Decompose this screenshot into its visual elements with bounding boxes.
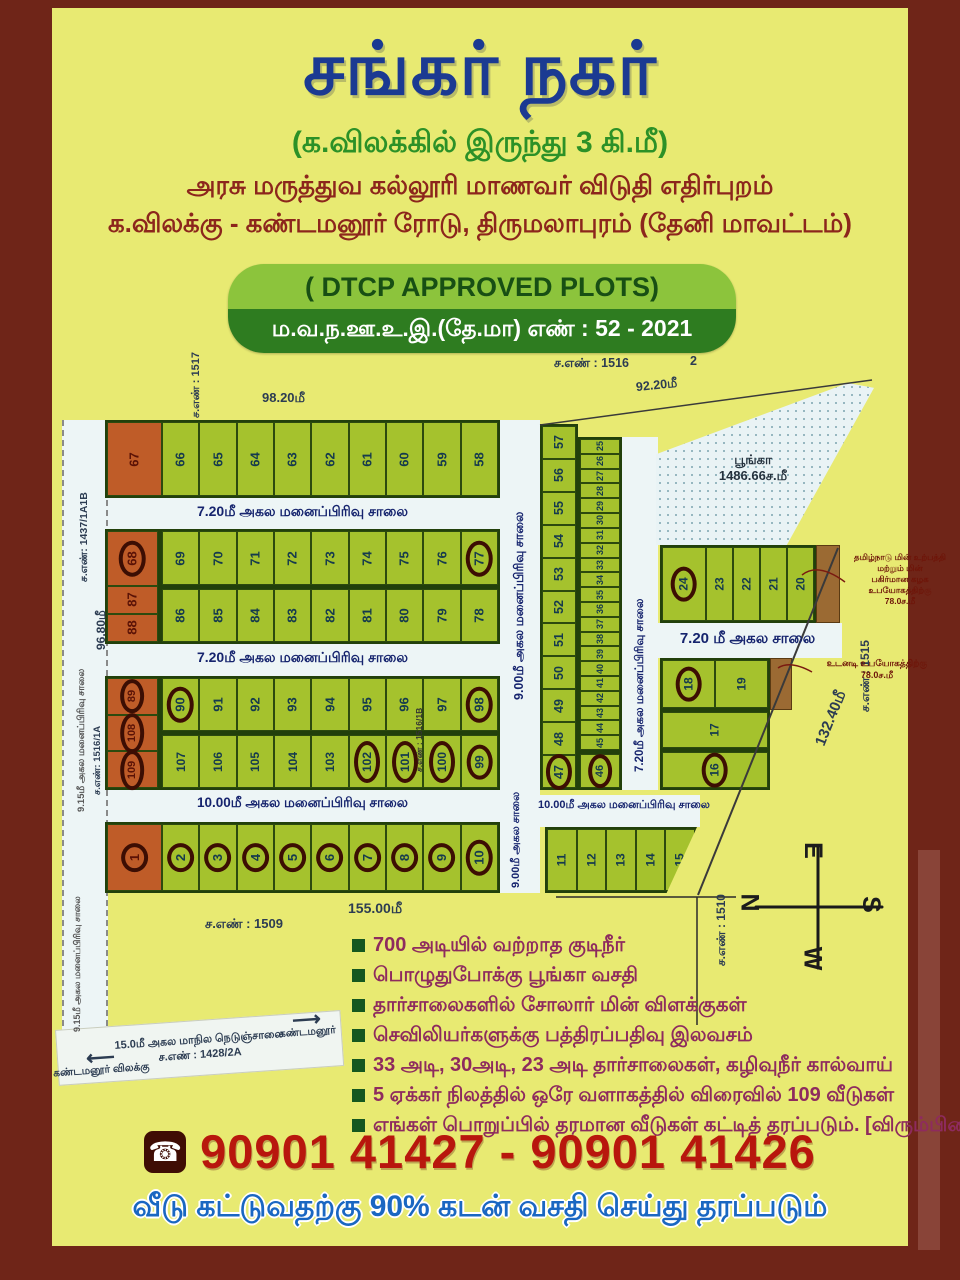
road-label-915-lower: 9.15மீ அகல மனைப்பிரிவு சாலை bbox=[72, 896, 84, 1032]
plot-cell-91: 91 bbox=[199, 678, 236, 731]
bullet-square-icon bbox=[352, 1029, 365, 1042]
address-line-1: அரசு மருத்துவ கல்லூரி மாணவர் விடுதி எதிர… bbox=[52, 170, 908, 204]
plot-cell-103: 103 bbox=[311, 735, 348, 788]
plot-cell-100: 100 bbox=[423, 735, 460, 788]
plot-number: 32 bbox=[595, 545, 605, 555]
plot-number-circled: 100 bbox=[429, 740, 455, 782]
plot-number: 50 bbox=[552, 666, 566, 680]
plot-number: 41 bbox=[595, 678, 605, 688]
plot-number: 97 bbox=[434, 697, 449, 711]
dim-96-80: 96.80மீ bbox=[94, 610, 110, 650]
plot-number: 67 bbox=[127, 452, 142, 466]
plot-cell-72: 72 bbox=[274, 531, 311, 585]
plot-cell-34: 34 bbox=[580, 572, 620, 587]
dtcp-approved-label: ( DTCP APPROVED PLOTS) bbox=[228, 264, 736, 309]
plot-cell-99: 99 bbox=[461, 735, 498, 788]
plot-number: 65 bbox=[210, 452, 225, 466]
plot-number-circled: 3 bbox=[204, 843, 231, 872]
plot-number: 61 bbox=[360, 452, 375, 466]
plot-number: 20 bbox=[793, 577, 807, 590]
plot-number: 37 bbox=[595, 619, 605, 629]
plot-number: 74 bbox=[360, 551, 375, 565]
plot-number: 21 bbox=[766, 577, 780, 590]
plot-number: 92 bbox=[248, 697, 263, 711]
plot-number-circled: 108 bbox=[120, 713, 144, 753]
plot-number: 30 bbox=[595, 515, 605, 525]
plot-number-circled: 102 bbox=[354, 740, 380, 782]
plot-cell-60: 60 bbox=[386, 422, 423, 496]
plot-block-b3top: 909192939495969798 bbox=[160, 676, 500, 733]
plot-block-blk20: 2423222120 bbox=[660, 545, 816, 623]
plot-cell-54: 54 bbox=[542, 525, 576, 558]
plot-cell-30: 30 bbox=[580, 513, 620, 528]
plot-cell-27: 27 bbox=[580, 469, 620, 484]
feature-item: 5 ஏக்கர் நிலத்தில் ஒரே வளாகத்தில் விரைவி… bbox=[352, 1084, 960, 1109]
survey-1516: ச.எண் : 1516 bbox=[554, 356, 629, 372]
road-label-1000-left: 10.00மீ அகல மனைப்பிரிவு சாலை bbox=[105, 795, 500, 813]
dim-155-00: 155.00மீ bbox=[348, 900, 402, 919]
park-size: 1486.66ச.மீ bbox=[688, 468, 818, 484]
plot-cell-95: 95 bbox=[349, 678, 386, 731]
plot-cell-84: 84 bbox=[237, 589, 274, 642]
compass-east: E bbox=[798, 842, 827, 859]
plot-number: 52 bbox=[552, 600, 566, 614]
plot-number: 84 bbox=[248, 608, 263, 622]
features-list: 700 அடியில் வற்றாத குடிநீர்பொழுதுபோக்கு … bbox=[352, 934, 960, 1144]
plot-number: 60 bbox=[397, 452, 412, 466]
plot-number-circled: 1 bbox=[121, 843, 148, 872]
plot-cell-78: 78 bbox=[461, 589, 498, 642]
plot-cell-82: 82 bbox=[311, 589, 348, 642]
plot-cell-102: 102 bbox=[349, 735, 386, 788]
plot-number: 59 bbox=[434, 452, 449, 466]
plot-cell-14: 14 bbox=[636, 829, 666, 891]
plot-cell-94: 94 bbox=[311, 678, 348, 731]
park-name: பூங்கா bbox=[688, 452, 818, 468]
plot-number: 39 bbox=[595, 649, 605, 659]
plot-cell-77: 77 bbox=[461, 531, 498, 585]
plot-cell-108: 108 bbox=[107, 715, 158, 752]
plot-block-blk16r1: 1819 bbox=[660, 658, 770, 710]
plot-block-b2top: 697071727374757677 bbox=[160, 529, 500, 587]
subtitle-distance: (க.விலக்கில் இருந்து 3 கி.மீ) bbox=[52, 126, 908, 164]
plot-number-circled: 18 bbox=[675, 666, 701, 701]
plot-number-circled: 77 bbox=[466, 540, 493, 576]
bullet-square-icon bbox=[352, 939, 365, 952]
plot-block-blk16r3: 16 bbox=[660, 750, 770, 790]
plot-number: 78 bbox=[472, 608, 487, 622]
plot-number: 63 bbox=[285, 452, 300, 466]
plot-cell-50: 50 bbox=[542, 656, 576, 689]
plot-cell-19: 19 bbox=[715, 660, 768, 708]
plot-number: 105 bbox=[248, 751, 262, 771]
plot-number: 42 bbox=[595, 693, 605, 703]
plot-number: 62 bbox=[322, 452, 337, 466]
plot-cell-22: 22 bbox=[733, 547, 760, 621]
plot-number: 25 bbox=[595, 441, 605, 451]
plot-number: 11 bbox=[555, 854, 569, 867]
plot-number: 87 bbox=[125, 592, 140, 606]
plot-cell-28: 28 bbox=[580, 483, 620, 498]
plot-cell-42: 42 bbox=[580, 691, 620, 706]
feature-item: பொழுதுபோக்கு பூங்கா வசதி bbox=[352, 964, 960, 989]
plot-cell-44: 44 bbox=[580, 720, 620, 735]
plot-cell-83: 83 bbox=[274, 589, 311, 642]
plot-number-circled: 47 bbox=[546, 754, 572, 790]
plot-number-circled: 46 bbox=[588, 754, 612, 788]
plot-number: 80 bbox=[397, 608, 412, 622]
plot-number: 66 bbox=[173, 452, 188, 466]
plot-number: 23 bbox=[712, 577, 726, 590]
plot-cell-64: 64 bbox=[237, 422, 274, 496]
plot-cell-32: 32 bbox=[580, 543, 620, 558]
plot-number: 44 bbox=[595, 723, 605, 733]
feature-text: 5 ஏக்கர் நிலத்தில் ஒரே வளாகத்தில் விரைவி… bbox=[373, 1084, 894, 1109]
plot-number: 75 bbox=[397, 551, 412, 565]
plot-cell-9: 9 bbox=[423, 824, 460, 891]
plot-cell-33: 33 bbox=[580, 558, 620, 573]
plot-cell-75: 75 bbox=[386, 531, 423, 585]
plot-cell-85: 85 bbox=[199, 589, 236, 642]
plot-cell-71: 71 bbox=[237, 531, 274, 585]
plot-number: 28 bbox=[595, 486, 605, 496]
plot-number-circled: 68 bbox=[119, 540, 146, 576]
plot-cell-90: 90 bbox=[162, 678, 199, 731]
bullet-square-icon bbox=[352, 999, 365, 1012]
plot-cell-20: 20 bbox=[787, 547, 814, 621]
plot-cell-21: 21 bbox=[760, 547, 787, 621]
plot-number: 72 bbox=[285, 551, 300, 565]
plot-cell-68: 68 bbox=[107, 531, 158, 586]
plot-number: 91 bbox=[210, 697, 225, 711]
plot-number: 54 bbox=[552, 534, 566, 548]
compass-north: N bbox=[735, 893, 764, 911]
plot-number: 29 bbox=[595, 501, 605, 511]
road-label-720-2: 7.20மீ அகல மனைப்பிரிவு சாலை bbox=[105, 649, 500, 668]
feature-text: பொழுதுபோக்கு பூங்கா வசதி bbox=[373, 964, 638, 989]
plot-cell-25: 25 bbox=[580, 439, 620, 454]
plot-number-circled: 10 bbox=[466, 839, 493, 875]
survey-1516-1a: ச.எண்: 1516/1A bbox=[92, 726, 104, 795]
plot-number: 82 bbox=[322, 608, 337, 622]
plot-number: 58 bbox=[472, 452, 487, 466]
plot-block-b2left: 688788 bbox=[105, 529, 160, 644]
plot-cell-53: 53 bbox=[542, 558, 576, 591]
feature-text: தார்சாலைகளில் சோலார் மின் விளக்குகள் bbox=[373, 994, 747, 1019]
road-label-900-long: 9.00மீ அகல மனைப்பிரிவு சாலை bbox=[512, 512, 528, 700]
approval-number: ம.வ.ந.ஊ.உ.இ.(தே.மா) எண் : 52 - 2021 bbox=[228, 309, 736, 353]
phone-numbers: 90901 41427 - 90901 41426 bbox=[200, 1124, 816, 1179]
plot-number-circled: 4 bbox=[242, 843, 269, 872]
plot-number-circled: 5 bbox=[279, 843, 306, 872]
plot-number: 81 bbox=[360, 608, 375, 622]
plot-cell-41: 41 bbox=[580, 676, 620, 691]
arrow-kandamanur: ⟶ கண்டமனூர் bbox=[271, 1012, 343, 1042]
feature-text: செவிலியர்களுக்கு பத்திரப்பதிவு இலவசம் bbox=[373, 1024, 753, 1049]
plot-cell-87: 87 bbox=[107, 586, 158, 614]
plot-block-b3bottom: 10710610510410310210110099 bbox=[160, 733, 500, 790]
plot-number: 45 bbox=[595, 738, 605, 748]
plot-number: 56 bbox=[552, 468, 566, 482]
plot-cell-40: 40 bbox=[580, 661, 620, 676]
plot-cell-48: 48 bbox=[542, 722, 576, 755]
plot-cell-2: 2 bbox=[162, 824, 199, 891]
plot-cell-12: 12 bbox=[577, 829, 607, 891]
plot-cell-76: 76 bbox=[423, 531, 460, 585]
plot-cell-56: 56 bbox=[542, 459, 576, 492]
plot-number: 70 bbox=[210, 551, 225, 565]
plot-number: 53 bbox=[552, 567, 566, 581]
plot-cell-16: 16 bbox=[662, 752, 768, 788]
plot-number: 35 bbox=[595, 590, 605, 600]
plot-cell-7: 7 bbox=[349, 824, 386, 891]
plot-cell-58: 58 bbox=[461, 422, 498, 496]
road-label-720-vertical: 7.20மீ அகல மனைப்பிரிவு சாலை bbox=[634, 599, 648, 772]
plot-cell-69: 69 bbox=[162, 531, 199, 585]
approval-pill: ( DTCP APPROVED PLOTS) ம.வ.ந.ஊ.உ.இ.(தே.ம… bbox=[228, 264, 736, 353]
tangedco-note: தமிழ்நாடு மின் உற்பத்தி மற்றும் மின் பகி… bbox=[843, 552, 957, 607]
road-label-1000-right: 10.00மீ அகல மனைப்பிரிவு சாலை bbox=[538, 799, 703, 813]
feature-item: தார்சாலைகளில் சோலார் மின் விளக்குகள் bbox=[352, 994, 960, 1019]
plot-cell-105: 105 bbox=[237, 735, 274, 788]
plot-cell-23: 23 bbox=[706, 547, 733, 621]
plot-cell-92: 92 bbox=[237, 678, 274, 731]
plot-cell-70: 70 bbox=[199, 531, 236, 585]
contact-row: ☎90901 41427 - 90901 41426 bbox=[52, 1124, 908, 1179]
plot-cell-8: 8 bbox=[386, 824, 423, 891]
plot-number: 57 bbox=[552, 436, 566, 450]
park-label: பூங்கா 1486.66ச.மீ bbox=[688, 452, 818, 485]
plot-cell-29: 29 bbox=[580, 498, 620, 513]
road-label-720-short: 7.20 மீ அகல சாலை bbox=[660, 630, 835, 649]
plot-number: 27 bbox=[595, 471, 605, 481]
plot-number: 12 bbox=[584, 853, 598, 866]
survey-1516-suffix: 2 bbox=[690, 354, 697, 368]
plot-number-circled: 9 bbox=[428, 843, 455, 872]
plot-cell-35: 35 bbox=[580, 587, 620, 602]
plot-cell-67: 67 bbox=[107, 422, 162, 496]
plot-block-rightCol: 5756555453525150494847 bbox=[540, 424, 578, 790]
plot-cell-74: 74 bbox=[349, 531, 386, 585]
plot-number: 48 bbox=[552, 732, 566, 746]
plot-number: 85 bbox=[210, 608, 225, 622]
plot-cell-49: 49 bbox=[542, 689, 576, 722]
plot-number: 71 bbox=[248, 551, 263, 565]
bullet-square-icon bbox=[352, 969, 365, 982]
plot-cell-51: 51 bbox=[542, 623, 576, 656]
plot-cell-4: 4 bbox=[237, 824, 274, 891]
plot-cell-26: 26 bbox=[580, 454, 620, 469]
plot-number: 95 bbox=[360, 697, 375, 711]
plot-number-circled: 109 bbox=[120, 749, 144, 789]
bullet-square-icon bbox=[352, 1059, 365, 1072]
plot-block-strip46: 46 bbox=[578, 752, 622, 790]
plot-number: 22 bbox=[739, 577, 753, 590]
plot-number: 36 bbox=[595, 604, 605, 614]
plot-cell-61: 61 bbox=[349, 422, 386, 496]
plot-cell-73: 73 bbox=[311, 531, 348, 585]
plot-number: 93 bbox=[285, 697, 300, 711]
plot-cell-89: 89 bbox=[107, 678, 158, 715]
plot-cell-46: 46 bbox=[580, 754, 620, 788]
bullet-square-icon bbox=[352, 1089, 365, 1102]
plot-number: 103 bbox=[323, 751, 337, 771]
road-label-915-upper: 9.15மீ அகல மனைப்பிரிவு சாலை bbox=[76, 669, 88, 812]
plot-cell-37: 37 bbox=[580, 617, 620, 632]
plot-number-circled: 6 bbox=[316, 843, 343, 872]
plot-number: 86 bbox=[173, 608, 188, 622]
survey-1509: ச.எண் : 1509 bbox=[205, 916, 283, 933]
plot-number: 73 bbox=[322, 551, 337, 565]
plot-cell-31: 31 bbox=[580, 528, 620, 543]
plot-cell-39: 39 bbox=[580, 646, 620, 661]
phone-icon: ☎ bbox=[144, 1131, 186, 1173]
feature-text: 33 அடி, 30அடி, 23 அடி தார்சாலைகள், கழிவு… bbox=[373, 1054, 893, 1079]
plot-number: 69 bbox=[173, 551, 188, 565]
plot-cell-93: 93 bbox=[274, 678, 311, 731]
plot-cell-59: 59 bbox=[423, 422, 460, 496]
survey-1516-1b: ச.எண் : 1516/1B bbox=[414, 708, 426, 772]
plot-number: 26 bbox=[595, 456, 605, 466]
plot-number: 79 bbox=[434, 608, 449, 622]
plot-cell-36: 36 bbox=[580, 602, 620, 617]
utility-strip-2 bbox=[770, 658, 792, 710]
plot-number: 40 bbox=[595, 664, 605, 674]
plot-number-circled: 90 bbox=[167, 686, 194, 722]
loan-offer-line: வீடு கட்டுவதற்கு 90% கடன் வசதி செய்து தர… bbox=[52, 1190, 908, 1228]
plot-cell-79: 79 bbox=[423, 589, 460, 642]
plot-number: 107 bbox=[174, 751, 188, 771]
plot-number: 51 bbox=[552, 633, 566, 647]
plot-cell-107: 107 bbox=[162, 735, 199, 788]
plot-cell-11: 11 bbox=[547, 829, 577, 891]
feature-item: 700 அடியில் வற்றாத குடிநீர் bbox=[352, 934, 960, 959]
plot-block-rowA: 67666564636261605958 bbox=[105, 420, 500, 498]
plot-number: 83 bbox=[285, 608, 300, 622]
feature-item: 33 அடி, 30அடி, 23 அடி தார்சாலைகள், கழிவு… bbox=[352, 1054, 960, 1079]
plot-number: 14 bbox=[644, 853, 658, 866]
plot-cell-5: 5 bbox=[274, 824, 311, 891]
plot-number: 94 bbox=[322, 697, 337, 711]
plot-number: 19 bbox=[734, 677, 748, 690]
plot-cell-38: 38 bbox=[580, 632, 620, 647]
plot-number: 106 bbox=[211, 751, 225, 771]
feature-text: 700 அடியில் வற்றாத குடிநீர் bbox=[373, 934, 625, 959]
plot-cell-109: 109 bbox=[107, 751, 158, 788]
plot-cell-66: 66 bbox=[162, 422, 199, 496]
plot-number: 96 bbox=[397, 697, 412, 711]
plot-cell-10: 10 bbox=[461, 824, 498, 891]
plot-number: 88 bbox=[125, 621, 140, 635]
plot-number-circled: 16 bbox=[702, 752, 728, 787]
plot-number-circled: 89 bbox=[121, 679, 145, 713]
plot-cell-13: 13 bbox=[606, 829, 636, 891]
plot-number: 104 bbox=[286, 751, 300, 771]
plot-cell-52: 52 bbox=[542, 591, 576, 624]
poster: சங்கர் நகர் (க.விலக்கில் இருந்து 3 கி.மீ… bbox=[0, 0, 960, 1280]
survey-1437: ச.எண்: 1437/1A1B bbox=[78, 492, 91, 582]
plot-cell-88: 88 bbox=[107, 614, 158, 642]
plot-block-blk16r2: 17 bbox=[660, 710, 770, 750]
plot-cell-80: 80 bbox=[386, 589, 423, 642]
address-line-2: க.விலக்கு - கண்டமனூர் ரோடு, திருமலாபுரம்… bbox=[52, 208, 908, 242]
plot-cell-17: 17 bbox=[662, 712, 768, 748]
plot-number: 33 bbox=[595, 560, 605, 570]
plot-number: 38 bbox=[595, 634, 605, 644]
plot-number: 13 bbox=[614, 853, 628, 866]
plot-number: 43 bbox=[595, 708, 605, 718]
survey-1517: ச.எண் : 1517 bbox=[190, 352, 204, 418]
plot-cell-55: 55 bbox=[542, 492, 576, 525]
road-label-720-1: 7.20மீ அகல மனைப்பிரிவு சாலை bbox=[105, 503, 500, 522]
compass-south: S bbox=[856, 896, 885, 913]
usage-note: உடனடி உபயோகத்திற்கு 78.0ச.மீ bbox=[802, 658, 952, 681]
plot-cell-45: 45 bbox=[580, 735, 620, 750]
plot-cell-81: 81 bbox=[349, 589, 386, 642]
plot-cell-106: 106 bbox=[199, 735, 236, 788]
plot-cell-86: 86 bbox=[162, 589, 199, 642]
dim-98-20: 98.20மீ bbox=[262, 390, 305, 407]
plot-cell-98: 98 bbox=[461, 678, 498, 731]
plot-number-circled: 2 bbox=[167, 843, 194, 872]
feature-item: செவிலியர்களுக்கு பத்திரப்பதிவு இலவசம் bbox=[352, 1024, 960, 1049]
plot-cell-65: 65 bbox=[199, 422, 236, 496]
page-title: சங்கர் நகர் bbox=[52, 26, 908, 122]
plot-number: 55 bbox=[552, 501, 566, 515]
plot-cell-24: 24 bbox=[662, 547, 706, 621]
plot-cell-97: 97 bbox=[423, 678, 460, 731]
plot-cell-43: 43 bbox=[580, 706, 620, 721]
plot-number: 31 bbox=[595, 530, 605, 540]
plot-cell-62: 62 bbox=[311, 422, 348, 496]
plot-number: 49 bbox=[552, 699, 566, 713]
utility-strip-1 bbox=[816, 545, 840, 623]
plot-number: 17 bbox=[708, 723, 722, 736]
plot-block-b2bottom: 868584838281807978 bbox=[160, 587, 500, 644]
plot-number: 76 bbox=[434, 551, 449, 565]
plot-cell-57: 57 bbox=[542, 426, 576, 459]
plot-cell-6: 6 bbox=[311, 824, 348, 891]
plot-block-strip: 2526272829303132333435363738394041424344… bbox=[578, 437, 622, 752]
plot-cell-3: 3 bbox=[199, 824, 236, 891]
plot-cell-63: 63 bbox=[274, 422, 311, 496]
plot-cell-18: 18 bbox=[662, 660, 715, 708]
plot-number-circled: 7 bbox=[354, 843, 381, 872]
plot-number-circled: 24 bbox=[671, 566, 697, 601]
plot-cell-47: 47 bbox=[542, 755, 576, 788]
plot-cell-104: 104 bbox=[274, 735, 311, 788]
road-label-900-short: 9.00மீ அகல சாலை bbox=[510, 792, 524, 888]
plot-number-circled: 98 bbox=[466, 686, 493, 722]
plot-number-circled: 8 bbox=[391, 843, 418, 872]
plot-number: 64 bbox=[248, 452, 263, 466]
plot-block-b3left: 89108109 bbox=[105, 676, 160, 790]
plot-number-circled: 99 bbox=[466, 744, 492, 779]
plot-cell-1: 1 bbox=[107, 824, 162, 891]
plot-number: 34 bbox=[595, 575, 605, 585]
plot-block-bottomRow: 12345678910 bbox=[105, 822, 500, 893]
